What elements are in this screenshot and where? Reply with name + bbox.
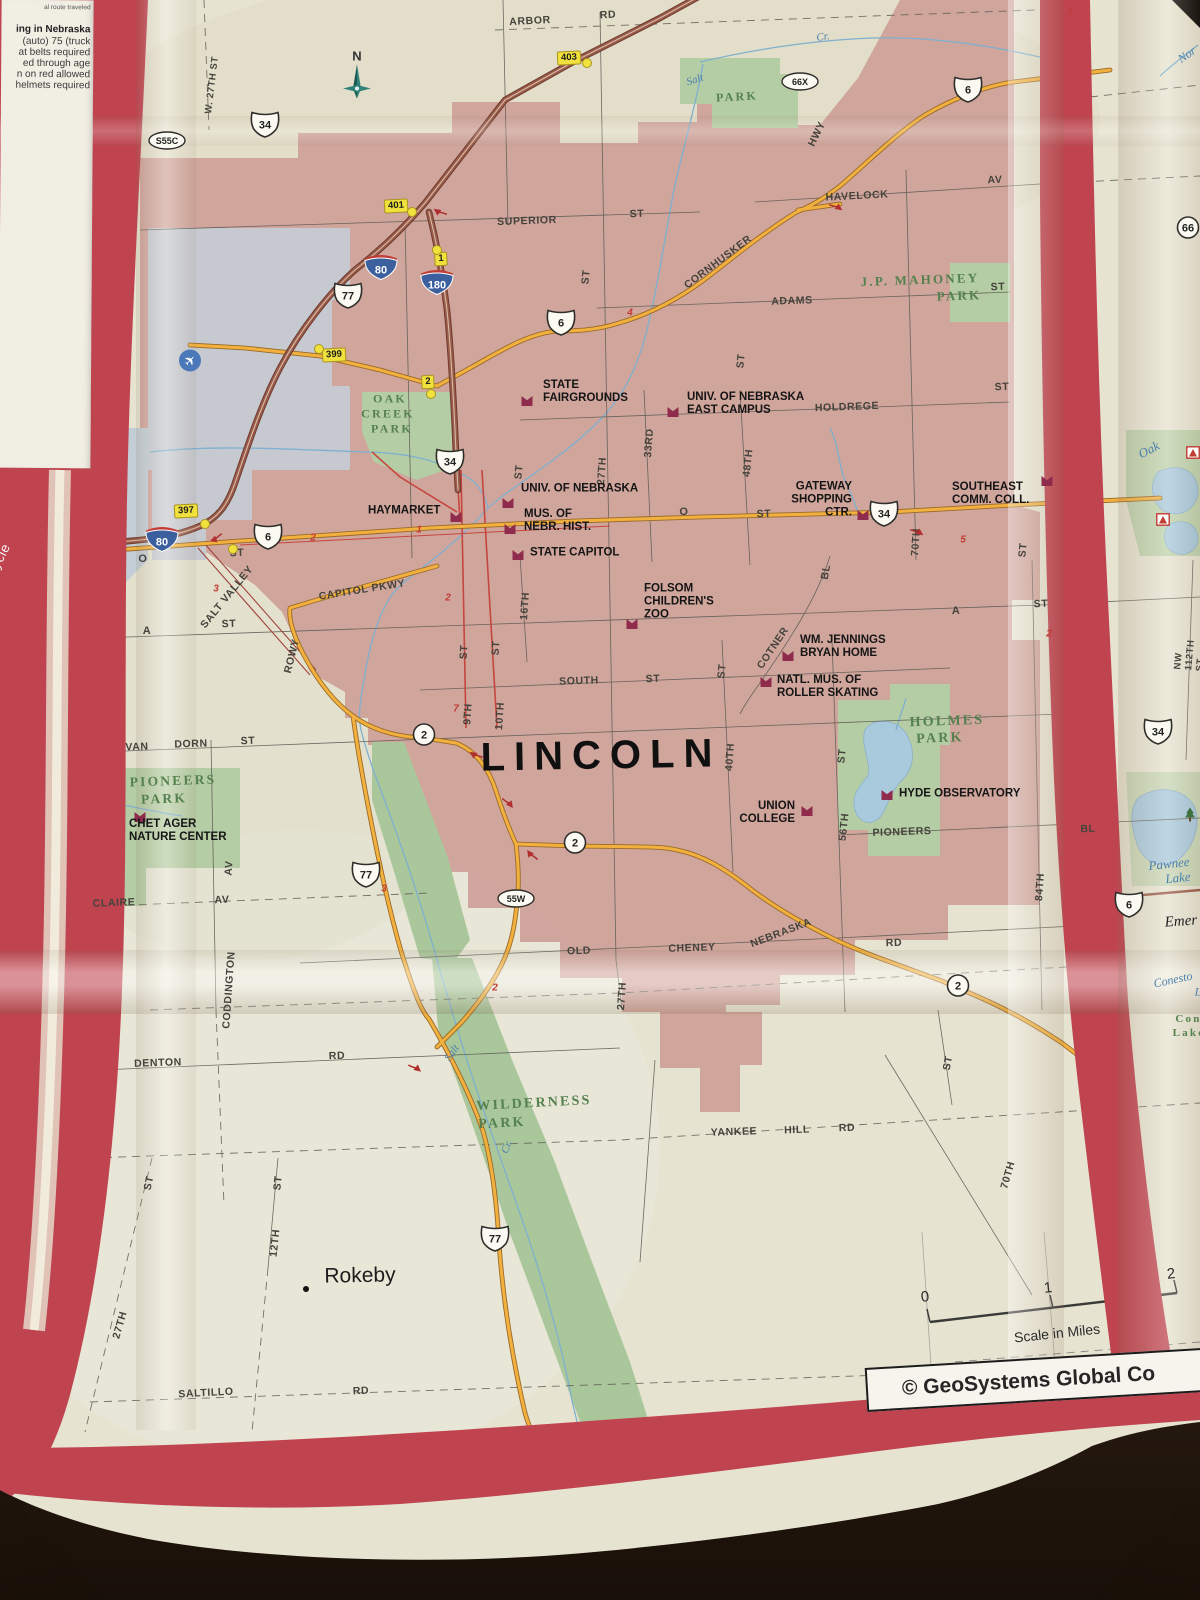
street-label: 48TH bbox=[741, 448, 756, 477]
street-label: ST bbox=[271, 1175, 284, 1191]
poi-label: FOLSOM CHILDREN'S ZOO bbox=[644, 583, 714, 622]
pine-tree-icon bbox=[1184, 808, 1196, 827]
svg-text:6: 6 bbox=[265, 532, 271, 544]
park-label: Lake bbox=[1173, 1027, 1200, 1039]
poi-label: UNIV. OF NEBRASKA EAST CAMPUS bbox=[687, 391, 804, 417]
water-label: Salt bbox=[685, 72, 705, 89]
state-route-circle: 2 bbox=[562, 830, 588, 861]
us-route-shield: 6 bbox=[951, 74, 985, 109]
water-label: Conesto bbox=[1152, 969, 1194, 992]
water-label: Oak bbox=[1136, 438, 1163, 462]
street-label: HWY bbox=[806, 120, 828, 149]
park-label: PARK bbox=[371, 422, 413, 437]
park-label: PARK bbox=[478, 1115, 526, 1133]
street-label: NEBRASKA bbox=[749, 916, 813, 950]
street-label: DORN bbox=[174, 737, 208, 750]
street-label: 27TH bbox=[110, 1310, 129, 1340]
pointer-arrow-icon bbox=[205, 527, 226, 549]
svg-text:6: 6 bbox=[558, 318, 564, 330]
mile-number: 7 bbox=[1067, 8, 1073, 19]
exit-number-badge: 2 bbox=[421, 375, 435, 390]
street-label: BL bbox=[1080, 823, 1096, 836]
street-label: A bbox=[952, 605, 961, 617]
exit-number-badge: 401 bbox=[384, 198, 409, 213]
street-label: DENTON bbox=[134, 1056, 182, 1070]
street-label: AV bbox=[214, 894, 229, 907]
svg-text:34: 34 bbox=[259, 120, 272, 132]
scale-tick-number: 2 bbox=[1166, 1265, 1176, 1283]
svg-text:6: 6 bbox=[1126, 900, 1132, 912]
svg-text:2: 2 bbox=[421, 730, 427, 742]
us-route-shield: 34 bbox=[867, 498, 901, 533]
street-label: ST bbox=[458, 644, 471, 659]
street-label: SUPERIOR bbox=[497, 214, 557, 228]
poi-label: STATE FAIRGROUNDS bbox=[543, 379, 628, 405]
water-label: Nor bbox=[1175, 43, 1199, 66]
park-label: PIONEERS bbox=[129, 771, 216, 790]
state-route-circle: 2 bbox=[945, 973, 971, 1004]
park-label: PARK bbox=[141, 790, 188, 808]
poi-marker-icon bbox=[451, 512, 462, 522]
svg-text:77: 77 bbox=[360, 870, 372, 882]
park-label: WILDERNESS bbox=[476, 1093, 592, 1115]
interstate-shield: 80 bbox=[362, 250, 400, 287]
street-label: ST bbox=[990, 281, 1005, 294]
state-route-circle: 66 bbox=[1175, 215, 1200, 246]
street-label: 12TH bbox=[268, 1228, 283, 1257]
water-label: Lake bbox=[1165, 869, 1192, 888]
street-label: ST bbox=[1016, 542, 1029, 558]
poi-marker-icon bbox=[513, 550, 524, 560]
street-label: VAN bbox=[125, 741, 149, 754]
svg-text:S55C: S55C bbox=[156, 136, 179, 146]
mile-number: 5 bbox=[960, 535, 966, 546]
interchange-dot bbox=[314, 344, 324, 354]
park-label: CREEK bbox=[361, 407, 415, 422]
street-label: 27TH bbox=[615, 982, 629, 1011]
park-label: PARK bbox=[916, 730, 964, 748]
street-label: COTNER bbox=[755, 625, 792, 671]
street-label: NW 112TH ST bbox=[1172, 638, 1200, 672]
mile-number: 2 bbox=[445, 593, 451, 604]
park-label: HOLMES bbox=[909, 713, 984, 732]
pointer-arrow-icon bbox=[496, 791, 520, 814]
poi-marker-icon bbox=[668, 407, 679, 417]
street-label: RD bbox=[886, 937, 903, 950]
street-label: 9TH bbox=[461, 703, 474, 725]
park-label: PARK bbox=[936, 287, 981, 305]
pointer-arrow-icon bbox=[403, 1056, 427, 1080]
poi-label: CHET AGER NATURE CENTER bbox=[129, 818, 227, 844]
interchange-dot bbox=[228, 544, 238, 554]
us-route-shield: 77 bbox=[349, 859, 383, 894]
street-label: CORNHUSKER bbox=[682, 233, 754, 291]
mile-number: 1 bbox=[416, 525, 422, 536]
street-label: ST bbox=[941, 1055, 955, 1071]
poi-marker-icon bbox=[503, 498, 514, 508]
street-label: SALTILLO bbox=[178, 1386, 234, 1401]
street-label: 16TH bbox=[518, 592, 532, 621]
scale-tick-number: 0 bbox=[920, 1288, 930, 1306]
town-dot bbox=[303, 1286, 309, 1292]
street-label: 40TH bbox=[723, 743, 737, 772]
exit-number-badge: 403 bbox=[557, 50, 582, 65]
street-label: PIONEERS bbox=[872, 825, 931, 839]
svg-text:180: 180 bbox=[428, 280, 446, 292]
street-label: CAPITOL PKWY bbox=[318, 577, 406, 603]
pointer-arrow-icon bbox=[905, 520, 928, 544]
poi-label: GATEWAY SHOPPING CTR. bbox=[791, 481, 852, 520]
street-label: ST bbox=[512, 464, 525, 480]
compass-north-icon: N bbox=[337, 49, 377, 116]
street-label: A bbox=[143, 625, 152, 637]
street-label: RD bbox=[600, 9, 617, 22]
mile-number: 2 bbox=[310, 533, 316, 544]
poi-marker-icon bbox=[882, 790, 893, 800]
water-label: Salt bbox=[442, 1043, 462, 1064]
town-label: Rokeby bbox=[324, 1263, 396, 1288]
us-route-shield: 34 bbox=[1141, 716, 1175, 751]
svg-text:66X: 66X bbox=[792, 77, 808, 87]
poi-marker-icon bbox=[761, 677, 772, 687]
street-label: ARBOR bbox=[509, 14, 551, 28]
mile-number: 7 bbox=[453, 704, 459, 715]
street-label: CODDINGTON bbox=[220, 951, 237, 1029]
poi-label: STATE CAPITOL bbox=[530, 547, 619, 560]
spur-route-oval: S55C bbox=[146, 130, 188, 157]
exit-number-badge: 397 bbox=[174, 503, 199, 518]
mile-number: 3 bbox=[213, 584, 219, 595]
street-label: RD bbox=[329, 1050, 346, 1063]
poi-marker-icon bbox=[802, 806, 813, 816]
mile-number: 2 bbox=[492, 983, 498, 994]
us-route-shield: 6 bbox=[544, 307, 578, 342]
street-label: ST bbox=[715, 663, 728, 679]
interchange-dot bbox=[200, 519, 210, 529]
interchange-dot bbox=[407, 207, 417, 217]
svg-text:66: 66 bbox=[1182, 223, 1194, 235]
svg-text:2: 2 bbox=[572, 838, 578, 850]
street-label: HILL bbox=[784, 1124, 810, 1137]
street-label: 70TH bbox=[998, 1160, 1017, 1190]
scale-caption: Scale in Miles bbox=[1013, 1321, 1101, 1346]
svg-text:34: 34 bbox=[878, 509, 891, 521]
svg-text:N: N bbox=[352, 49, 361, 64]
credit-text: © GeoSystems Global Co bbox=[901, 1362, 1155, 1400]
poi-label: WM. JENNINGS BRYAN HOME bbox=[800, 634, 886, 660]
svg-text:2: 2 bbox=[955, 981, 961, 993]
street-label: 56TH bbox=[837, 812, 852, 841]
interstate-shield: 180 bbox=[418, 265, 456, 302]
us-route-shield: 34 bbox=[433, 446, 467, 481]
poi-label: UNIV. OF NEBRASKA bbox=[521, 483, 638, 496]
us-route-shield: 6 bbox=[1112, 889, 1146, 924]
svg-text:55W: 55W bbox=[507, 894, 526, 904]
svg-text:77: 77 bbox=[342, 291, 354, 303]
street-label: BL bbox=[819, 563, 833, 580]
street-label: ST bbox=[1033, 598, 1048, 611]
interchange-dot bbox=[582, 58, 592, 68]
campground-icon bbox=[1156, 513, 1170, 531]
park-label: Cone bbox=[1175, 1013, 1200, 1025]
us-route-shield: 6 bbox=[251, 521, 285, 556]
street-label: ST bbox=[490, 640, 503, 655]
svg-text:80: 80 bbox=[375, 265, 387, 277]
exit-number-badge: 399 bbox=[322, 347, 347, 362]
spur-route-oval: 66X bbox=[779, 71, 821, 98]
poi-marker-icon bbox=[627, 619, 638, 629]
poi-label: NATL. MUS. OF ROLLER SKATING bbox=[777, 674, 878, 700]
interchange-dot bbox=[426, 389, 436, 399]
street-label: ST bbox=[221, 618, 236, 631]
spur-route-oval: 55W bbox=[495, 888, 537, 915]
street-label: ST bbox=[629, 208, 644, 221]
town-label: Emer bbox=[1164, 912, 1198, 931]
poi-label: HYDE OBSERVATORY bbox=[899, 788, 1020, 801]
street-label: 27TH bbox=[595, 457, 609, 486]
street-label: OLD bbox=[567, 945, 591, 958]
us-route-shield: 34 bbox=[248, 109, 282, 144]
street-label: 33RD bbox=[642, 428, 656, 458]
photo-of-lincoln-road-map: al route traveleding in Nebraska(auto) 7… bbox=[0, 0, 1200, 1600]
interstate-shield: 80 bbox=[143, 522, 181, 559]
svg-text:80: 80 bbox=[156, 537, 168, 549]
water-label: Cr. bbox=[816, 30, 831, 44]
street-label: ST bbox=[835, 748, 848, 764]
street-label: RD bbox=[353, 1385, 370, 1398]
poi-marker-icon bbox=[1042, 476, 1053, 486]
street-label: ST bbox=[579, 269, 592, 285]
street-label: ST bbox=[756, 508, 771, 521]
street-label: ADAMS bbox=[771, 294, 813, 307]
street-label: YANKEE bbox=[711, 1125, 758, 1139]
campground-icon bbox=[1186, 446, 1200, 464]
pointer-arrow-icon bbox=[428, 200, 451, 224]
city-label: LINCOLN bbox=[480, 731, 722, 780]
street-label: 84TH bbox=[1033, 873, 1047, 902]
street-label: ST bbox=[645, 673, 660, 686]
poi-marker-icon bbox=[783, 651, 794, 661]
svg-text:77: 77 bbox=[489, 1234, 501, 1246]
street-label: CLAIRE bbox=[92, 896, 135, 909]
us-route-shield: 77 bbox=[478, 1223, 512, 1258]
interchange-dot bbox=[432, 245, 442, 255]
street-label: W. 27TH ST bbox=[203, 56, 221, 115]
street-label: AV bbox=[987, 174, 1002, 187]
poi-label: SOUTHEAST COMM. COLL. bbox=[952, 481, 1029, 507]
poi-label: MUS. OF NEBR. HIST. bbox=[524, 508, 591, 534]
svg-text:34: 34 bbox=[444, 457, 457, 469]
street-label: O bbox=[679, 506, 688, 518]
street-label: ROWY bbox=[282, 638, 302, 675]
street-label: ST bbox=[240, 735, 255, 748]
airport-icon: ✈ bbox=[178, 349, 202, 378]
poi-label: HAYMARKET bbox=[368, 505, 440, 518]
street-label: AV bbox=[222, 860, 235, 876]
street-label: ST bbox=[994, 381, 1009, 394]
street-label: CHENEY bbox=[668, 941, 716, 955]
mile-number: 2 bbox=[1046, 629, 1052, 640]
svg-text:6: 6 bbox=[965, 85, 971, 97]
street-label: SOUTH bbox=[559, 674, 599, 687]
street-label: 10TH bbox=[493, 702, 507, 731]
pointer-arrow-icon bbox=[520, 843, 544, 866]
park-label: PARK bbox=[716, 88, 759, 105]
scale-tick-number: 1 bbox=[1043, 1279, 1053, 1297]
water-label: L bbox=[1195, 985, 1200, 1000]
park-label: OAK bbox=[373, 392, 407, 407]
street-label: RD bbox=[839, 1122, 856, 1135]
svg-text:34: 34 bbox=[1152, 727, 1165, 739]
poi-label: UNION COLLEGE bbox=[739, 800, 795, 826]
street-label: HOLDREGE bbox=[815, 400, 880, 414]
mile-number: 4 bbox=[627, 308, 633, 319]
state-route-circle: 2 bbox=[411, 722, 437, 753]
water-label: Cr. bbox=[499, 1139, 515, 1156]
street-label: ST bbox=[734, 353, 747, 369]
poi-marker-icon bbox=[505, 524, 516, 534]
poi-marker-icon bbox=[522, 396, 533, 406]
us-route-shield: 77 bbox=[331, 280, 365, 315]
street-label: ST bbox=[142, 1175, 157, 1192]
